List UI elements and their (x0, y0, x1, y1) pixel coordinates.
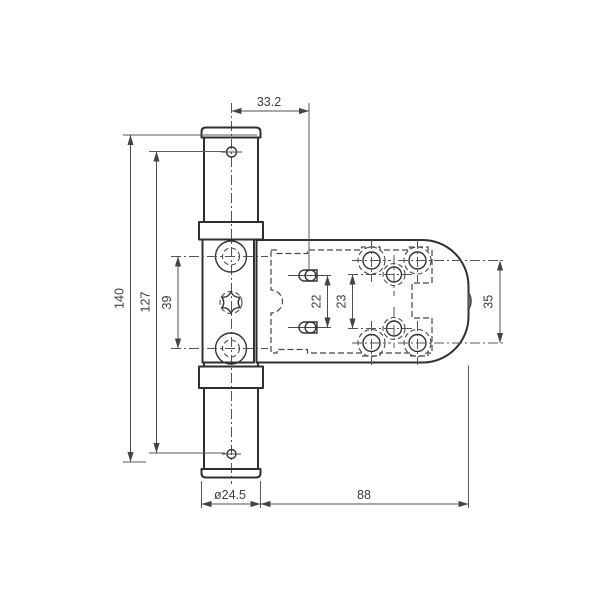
dimension-leaf-hole-spacing: 39 (160, 257, 178, 349)
dimension-label: 140 (113, 288, 127, 309)
dimension-flange-length: 88 (261, 366, 469, 509)
dimension-label: 22 (310, 295, 324, 309)
dimension-pivot-to-stud: 33.2 (232, 95, 310, 269)
locating-stud-bottom (288, 322, 331, 333)
dimension-fixing-hole-spacing: 127 (139, 152, 226, 454)
dimension-barrel-length: 140 (113, 135, 258, 462)
dimension-label: 23 (335, 295, 349, 309)
center-leaf (171, 240, 268, 365)
technical-drawing-canvas: 33.2 140 127 39 22 23 35 ø24.5 (0, 0, 600, 600)
dimension-label: 39 (160, 296, 174, 310)
dimension-stud-spacing: 22 (310, 276, 328, 328)
dimension-label: 35 (482, 295, 496, 309)
dimension-label: 127 (139, 292, 153, 313)
flange-leaf (257, 239, 507, 365)
screw-hole-top-right (398, 239, 506, 282)
screw-hole-top-left (352, 239, 391, 282)
dimension-barrel-diameter: ø24.5 (202, 481, 261, 508)
screw-hole-bottom-left (352, 321, 391, 365)
dimension-label: ø24.5 (214, 488, 246, 502)
screw-hole-bottom-right (398, 321, 506, 365)
locating-stud-top (288, 270, 331, 281)
dimension-flange-hole-spacing: 35 (482, 261, 501, 344)
flange-edge-pin (468, 291, 471, 311)
mounting-plate-hidden-outline (271, 247, 432, 356)
dimension-plate-hole-spacing: 23 (335, 275, 353, 329)
hinge-drawing: 33.2 140 127 39 22 23 35 ø24.5 (0, 0, 600, 600)
dimension-label: 88 (357, 488, 371, 502)
dimension-label: 33.2 (257, 95, 281, 109)
